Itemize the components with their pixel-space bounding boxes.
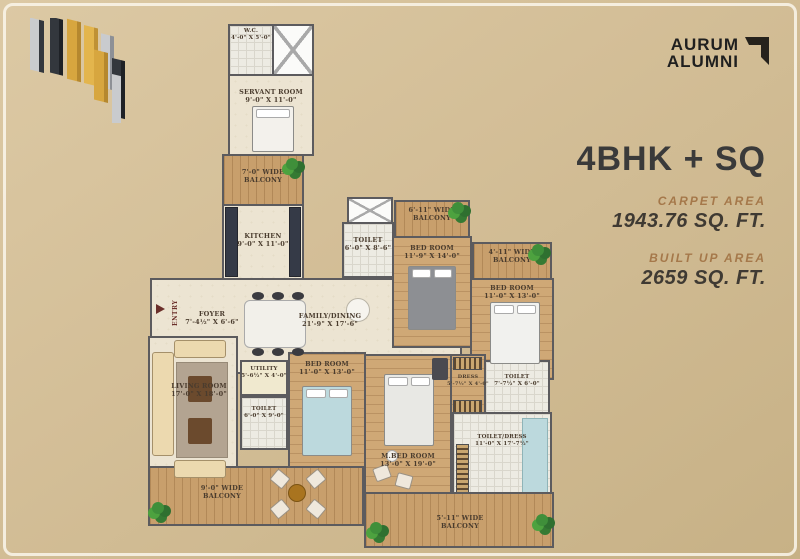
builtup-area-label: BUILT UP AREA	[577, 251, 766, 265]
dining-chairs	[252, 348, 304, 356]
carpet-area-label: CARPET AREA	[577, 194, 766, 208]
plant-icon	[532, 244, 544, 256]
bed-master	[384, 374, 434, 446]
room-label-kitchen: KITCHEN9'-0" X 11'-0"	[224, 232, 302, 249]
shaft	[347, 197, 393, 224]
room-label-balcony511: 5'-11" WIDEBALCONY	[390, 514, 530, 531]
plant-icon	[286, 158, 298, 170]
dining-chairs	[252, 292, 304, 300]
room-label-master-bed: M.BED ROOM13'-0" X 19'-0"	[366, 452, 450, 469]
patio-table	[288, 484, 306, 502]
sofa	[174, 340, 226, 358]
coffee-table	[188, 418, 212, 444]
room-label-toilet-top: TOILET6'-0" X 8'-6"	[342, 236, 394, 253]
sofa	[152, 352, 174, 456]
room-toilet-left	[240, 396, 288, 450]
bed-right	[490, 302, 540, 364]
unit-type-title: 4BHK + SQ	[577, 142, 766, 176]
plant-icon	[452, 202, 464, 214]
room-label-foyer: FOYER7'-4½" X 6'-6"	[180, 310, 244, 327]
bathtub	[522, 418, 548, 494]
bed-servant	[252, 106, 294, 152]
carpet-area-value: 1943.76 SQ. FT.	[577, 210, 766, 233]
brochure-page: { "colors":{"background_tan":"#d4bf98","…	[0, 0, 800, 559]
room-label-utility: UTILITY5'-6½" X 4'-0"	[240, 366, 288, 380]
floor-plan: ENTRY W.C.4'-0" X	[140, 14, 576, 550]
plant-icon	[370, 522, 382, 534]
towers-logo-icon	[24, 18, 134, 123]
room-label-living: LIVING ROOM17'-0" X 18'-0"	[160, 382, 238, 399]
sofa	[174, 460, 226, 478]
unit-info-panel: 4BHK + SQ CARPET AREA 1943.76 SQ. FT. BU…	[577, 142, 766, 290]
room-label-toilet-dress: TOILET/DRESS11'-0" X 17'-7½"	[456, 434, 548, 448]
room-label-toilet-left: TOILET6'-0" X 9'-0"	[240, 406, 288, 420]
room-label-servant: SERVANT ROOM9'-0" X 11'-0"	[228, 88, 314, 105]
bed-topright	[408, 266, 456, 330]
entry-label: ENTRY	[172, 300, 179, 326]
room-label-toilet-right: TOILET7'-7½" X 6'-0"	[484, 374, 550, 388]
room-label-balcony9: 9'-0" WIDEBALCONY	[176, 484, 268, 501]
brand-line1: AURUM	[667, 36, 739, 53]
room-label-bed-topright: BED ROOM11'-9" X 14'-0"	[394, 244, 470, 261]
brand-line2: ALUMNI	[667, 53, 739, 70]
brand-logo: AURUM ALUMNI	[667, 36, 770, 70]
entry-arrow-icon	[156, 304, 165, 314]
bed-centre	[302, 386, 352, 456]
room-label-bed-right: BED ROOM11'-0" X 13'-0"	[472, 284, 552, 301]
lift-shaft	[272, 24, 314, 76]
room-label-bed-centre: BED ROOM11'-0" X 13'-0"	[290, 360, 364, 377]
wardrobe	[453, 357, 482, 370]
room-label-wc: W.C.4'-0" X 5'-0"	[228, 28, 274, 42]
plant-icon	[536, 514, 548, 526]
room-label-balcony7: 7'-0" WIDEBALCONY	[224, 168, 302, 185]
room-label-family: FAMILY/DINING21'-9" X 17'-6"	[282, 312, 378, 329]
brand-corner-icon	[744, 36, 770, 66]
builtup-area-value: 2659 SQ. FT.	[577, 267, 766, 290]
wardrobe	[456, 444, 469, 496]
plant-icon	[152, 502, 164, 514]
